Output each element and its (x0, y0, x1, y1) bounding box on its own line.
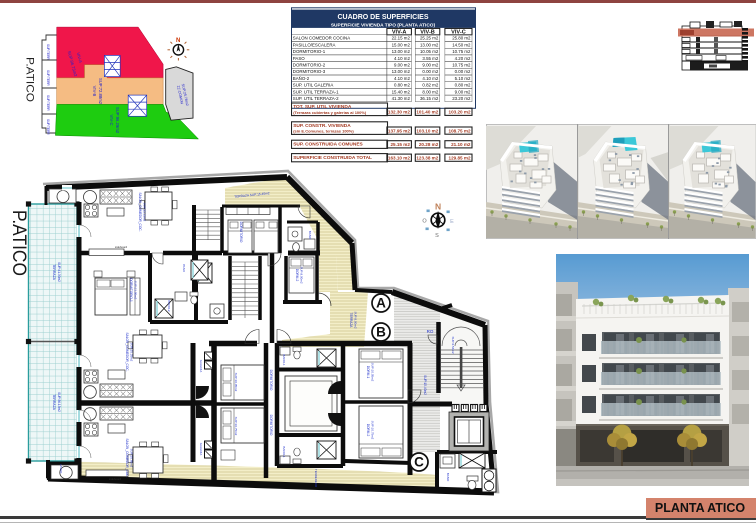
svg-text:SUP. UTIL TERRAZA-2: SUP. UTIL TERRAZA-2 (293, 96, 339, 101)
svg-text:DORMITORIO: DORMITORIO (269, 370, 273, 391)
svg-text:N: N (176, 38, 180, 44)
svg-text:SUPERFICIE CONSTRUIDA TOTAL: SUPERFICIE CONSTRUIDA TOTAL (293, 155, 372, 161)
svg-text:GALERIA: GALERIA (199, 443, 203, 456)
svg-text:13.00 m2: 13.00 m2 (392, 49, 411, 54)
svg-text:103.10 m2: 103.10 m2 (416, 128, 438, 133)
svg-text:O: O (422, 219, 427, 225)
svg-text:123.38 m2: 123.38 m2 (416, 156, 438, 161)
svg-text:SUPERFICIE VIVIENDA TIPO (PLA: SUPERFICIE VIVIENDA TIPO (PLANTA ATICO) (331, 23, 436, 29)
svg-text:SUP.TERR: SUP.TERR (46, 95, 50, 111)
svg-text:sideboard: sideboard (115, 245, 128, 249)
svg-text:VIV-C: VIV-C (109, 115, 114, 126)
svg-text:SUP. UTIL GALERIA: SUP. UTIL GALERIA (293, 83, 334, 88)
svg-text:BANO-1: BANO-1 (282, 446, 286, 458)
svg-text:SUP:15.40m2: SUP:15.40m2 (423, 375, 427, 395)
svg-text:B: B (376, 325, 386, 340)
svg-text:SUP:8.00m2: SUP:8.00m2 (354, 311, 358, 328)
svg-text:8.00 m2: 8.00 m2 (422, 89, 438, 94)
svg-text:LAVAD.: LAVAD. (59, 464, 63, 474)
svg-text:SUP:41.30m2: SUP:41.30m2 (57, 262, 61, 282)
svg-text:SUP.TERR: SUP.TERR (46, 44, 50, 60)
svg-text:20.28 m2: 20.28 m2 (419, 142, 439, 147)
svg-text:4.10 m2: 4.10 m2 (394, 76, 410, 81)
svg-text:0.00 m2: 0.00 m2 (455, 69, 471, 74)
svg-text:P.ATICO: P.ATICO (8, 210, 29, 276)
svg-text:SUP:9.00m2: SUP:9.00m2 (300, 266, 304, 283)
svg-text:TERRAZA: TERRAZA (52, 264, 56, 281)
svg-text:SUP:13.00m2: SUP:13.00m2 (134, 281, 138, 300)
svg-text:SALON_COMEDOR_COC.: SALON_COMEDOR_COC. (125, 333, 129, 372)
svg-text:9.00 m2: 9.00 m2 (422, 63, 438, 68)
svg-text:SUP:10.05m2: SUP:10.05m2 (234, 373, 238, 392)
svg-text:TENDEDERO: TENDEDERO (314, 469, 318, 488)
svg-text:41.30 m2: 41.30 m2 (392, 96, 411, 101)
svg-text:4.10 m2: 4.10 m2 (422, 76, 438, 81)
svg-text:E: E (450, 219, 454, 225)
svg-text:DORMITORIO-3: DORMITORIO-3 (293, 69, 326, 74)
svg-text:SUP:2.54m2: SUP:2.54m2 (451, 336, 455, 353)
svg-text:163.10 m2: 163.10 m2 (388, 156, 410, 161)
svg-text:sideboard: sideboard (109, 477, 122, 481)
svg-text:10.75 m2: 10.75 m2 (452, 63, 471, 68)
svg-text:DORM-2: DORM-2 (295, 269, 299, 282)
svg-text:SALON_COMEDOR_COC.: SALON_COMEDOR_COC. (125, 439, 129, 478)
svg-text:36.15 m2: 36.15 m2 (420, 96, 439, 101)
svg-text:3.55 m2: 3.55 m2 (422, 56, 438, 61)
svg-text:25.80 m2: 25.80 m2 (452, 36, 471, 41)
svg-text:0.80 m2: 0.80 m2 (394, 83, 410, 88)
svg-text:DORM-1: DORM-1 (366, 366, 370, 379)
svg-text:DORM-2: DORM-2 (366, 424, 370, 437)
svg-text:14.50 m2: 14.50 m2 (452, 42, 471, 47)
svg-text:SUP:10.75m2: SUP:10.75m2 (234, 417, 238, 436)
svg-text:129.85 m2: 129.85 m2 (449, 156, 471, 161)
svg-text:137.95 m2: 137.95 m2 (388, 128, 410, 133)
svg-text:132.30 m2: 132.30 m2 (388, 110, 410, 115)
svg-text:SUP:25.25m2: SUP:25.25m2 (130, 343, 134, 362)
svg-text:SUP:10.75m2: SUP:10.75m2 (371, 421, 375, 440)
svg-text:DORMITORIO: DORMITORIO (269, 415, 273, 436)
svg-text:4.10 m2: 4.10 m2 (394, 56, 410, 61)
svg-text:15.00 m2: 15.00 m2 (392, 42, 411, 47)
svg-text:5.10 m2: 5.10 m2 (455, 76, 471, 81)
svg-text:10.75 m2: 10.75 m2 (452, 49, 471, 54)
svg-text:SUP:36.15m2: SUP:36.15m2 (57, 392, 61, 412)
svg-text:SUP. CONSTRUIDA COMUNES: SUP. CONSTRUIDA COMUNES (293, 141, 363, 147)
svg-text:BANO-1: BANO-1 (282, 354, 286, 366)
svg-text:DORMITORIO-1: DORMITORIO-1 (129, 278, 133, 302)
svg-text:103.20 m2: 103.20 m2 (449, 110, 471, 115)
svg-text:RO: RO (427, 329, 434, 334)
svg-text:10.05 m2: 10.05 m2 (420, 49, 439, 54)
svg-text:25.25 m2: 25.25 m2 (420, 36, 439, 41)
svg-text:13.00 m2: 13.00 m2 (420, 42, 439, 47)
svg-text:SUP:25.80m2: SUP:25.80m2 (130, 449, 134, 468)
svg-text:SALON COMEDOR COCINA: SALON COMEDOR COCINA (293, 36, 350, 41)
svg-text:22.15 m2: 22.15 m2 (392, 36, 411, 41)
svg-text:SUP:96.29m2: SUP:96.29m2 (115, 107, 120, 134)
svg-text:A: A (376, 296, 386, 311)
svg-text:SUP.TERR: SUP.TERR (46, 70, 50, 86)
svg-text:(sin E.Comunes, terrazas 100%): (sin E.Comunes, terrazas 100%) (293, 129, 354, 134)
svg-text:0.00 m2: 0.00 m2 (422, 69, 438, 74)
svg-text:9.00 m2: 9.00 m2 (394, 63, 410, 68)
svg-text:PASO: PASO (293, 56, 305, 61)
svg-text:4.20 m2: 4.20 m2 (455, 56, 471, 61)
svg-text:SUP:10.05m2: SUP:10.05m2 (371, 363, 375, 382)
svg-text:25.15 m2: 25.15 m2 (390, 142, 410, 147)
svg-text:CUADRO DE SUPERFICIES: CUADRO DE SUPERFICIES (337, 14, 428, 21)
svg-text:TERRAZA: TERRAZA (52, 394, 56, 411)
svg-text:9.00 m2: 9.00 m2 (455, 89, 471, 94)
svg-text:23.20 m2: 23.20 m2 (452, 96, 471, 101)
svg-text:VIV-B: VIV-B (92, 86, 97, 97)
svg-text:BANO: BANO (446, 473, 450, 482)
svg-text:GALERIA: GALERIA (199, 360, 203, 373)
svg-text:TERRAZA: TERRAZA (349, 313, 353, 329)
svg-text:15.40 m2: 15.40 m2 (392, 89, 411, 94)
svg-text:SUP:72.88m2: SUP:72.88m2 (98, 78, 103, 105)
svg-text:101.40 m2: 101.40 m2 (416, 110, 438, 115)
svg-text:DORMITORIO: DORMITORIO (239, 222, 243, 243)
svg-text:21.10 m2: 21.10 m2 (451, 142, 471, 147)
svg-text:(Terrazas cubiertas y galerias: (Terrazas cubiertas y galerias al 100%) (293, 110, 367, 115)
svg-text:BAÑO-2: BAÑO-2 (293, 76, 310, 81)
svg-text:DORMITORIO-1: DORMITORIO-1 (293, 49, 326, 54)
svg-text:BANO: BANO (308, 231, 312, 240)
svg-text:BANO-2: BANO-2 (167, 300, 171, 312)
svg-text:C: C (414, 455, 424, 470)
svg-text:SUP.TERR: SUP.TERR (46, 119, 50, 135)
svg-text:PASO: PASO (182, 264, 186, 273)
svg-text:DORMITORIO-2: DORMITORIO-2 (293, 63, 326, 68)
svg-text:SUP:22.15m2: SUP:22.15m2 (143, 203, 147, 222)
svg-text:N: N (435, 202, 441, 212)
svg-text:S: S (435, 233, 439, 239)
svg-text:PASILLO/ESCALERA: PASILLO/ESCALERA (293, 42, 336, 47)
svg-text:SUP. UTIL TERRAZA-1: SUP. UTIL TERRAZA-1 (293, 89, 339, 94)
svg-text:0.80 m2: 0.80 m2 (455, 83, 471, 88)
svg-text:13.00 m2: 13.00 m2 (392, 69, 411, 74)
svg-text:0.82 m2: 0.82 m2 (422, 83, 438, 88)
svg-text:SALON_COMEDOR_COC.: SALON_COMEDOR_COC. (138, 193, 142, 232)
svg-text:108.75 m2: 108.75 m2 (449, 128, 471, 133)
svg-text:P.ATICO: P.ATICO (24, 57, 36, 102)
